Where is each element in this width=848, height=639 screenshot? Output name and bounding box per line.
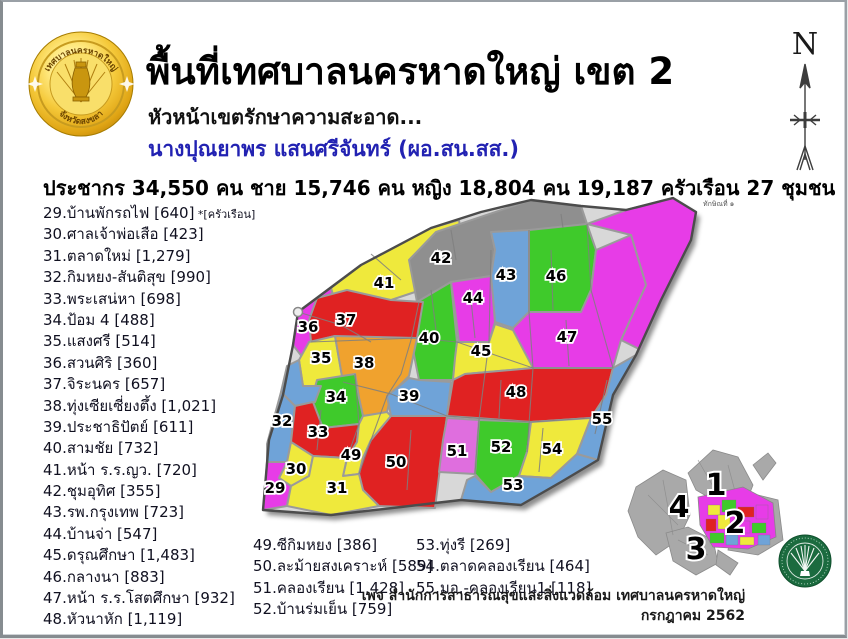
region-number-36: 36	[298, 318, 319, 336]
community-item-46: 46.กลางนา [883]	[43, 567, 255, 588]
community-item-36: 36.สวนศิริ [360]	[43, 353, 255, 374]
community-item-34: 34.ป้อม 4 [488]	[43, 310, 255, 331]
vase-emblem-icon	[72, 62, 90, 101]
region-number-31: 31	[327, 479, 348, 497]
community-item-43: 43.รพ.กรุงเทพ [723]	[43, 502, 255, 523]
region-number-49: 49	[341, 446, 362, 464]
community-item-30: 30.ศาลเจ้าพ่อเสือ [423]	[43, 224, 255, 245]
community-item-47: 47.หน้า ร.ร.โสตศึกษา [932]	[43, 588, 255, 609]
unit-note: *[ครัวเรือน]	[194, 208, 255, 221]
north-label: N	[792, 27, 818, 62]
road-label: ทักษิณที่ ๑	[703, 199, 734, 208]
region-number-37: 37	[336, 311, 357, 329]
officer-name: นางปุณยาพร แสนศรีจันทร์ (ผอ.สน.สส.)	[148, 133, 519, 166]
minimap-zone-number-2: 2	[725, 506, 746, 541]
region-number-34: 34	[326, 388, 347, 406]
region-number-51: 51	[447, 442, 468, 460]
region-number-35: 35	[311, 349, 332, 367]
minimap-zone-number-4: 4	[669, 490, 690, 525]
community-item-45: 45.ดรุณศึกษา [1,483]	[43, 545, 255, 566]
community-list-col1: 29.บ้านพักรถไฟ [640] *[ครัวเรือน]30.ศาลเ…	[43, 203, 255, 631]
region-number-44: 44	[463, 289, 484, 307]
credit-date: กรกฎาคม 2562	[641, 605, 745, 627]
community-item-41: 41.หน้า ร.ร.ญว. [720]	[43, 460, 255, 481]
region-number-32: 32	[272, 412, 293, 430]
community-item-37: 37.จิระนคร [657]	[43, 374, 255, 395]
community-item-48: 48.หัวนาหัก [1,119]	[43, 609, 255, 630]
community-item-29: 29.บ้านพักรถไฟ [640] *[ครัวเรือน]	[43, 203, 255, 224]
community-item-35: 35.แสงศรี [514]	[43, 331, 255, 352]
health-department-green-seal-icon	[777, 533, 833, 589]
region-number-40: 40	[419, 329, 440, 347]
region-number-53: 53	[503, 476, 524, 494]
roundabout-icon	[294, 308, 303, 317]
poster-page: เทศบาลนครหาดใหญ่ จังหวัดสงขลา พื้นที่เทศ…	[0, 0, 847, 638]
region-number-30: 30	[286, 460, 307, 478]
community-item-39: 39.ประชาธิปัตย์ [611]	[43, 417, 255, 438]
community-item-31: 31.ตลาดใหม่ [1,279]	[43, 246, 255, 267]
region-number-47: 47	[557, 328, 578, 346]
minimap-zone-number-3: 3	[686, 532, 707, 567]
community-item-32: 32.กิมหยง-สันติสุข [990]	[43, 267, 255, 288]
region-number-45: 45	[471, 342, 492, 360]
region-number-39: 39	[399, 387, 420, 405]
region-number-55: 55	[592, 410, 613, 428]
community-item-42: 42.ชุมอุทิศ [355]	[43, 481, 255, 502]
minimap-zone-number-1: 1	[706, 468, 727, 503]
page-title: พื้นที่เทศบาลนครหาดใหญ่ เขต 2	[146, 42, 674, 101]
map-region-44	[451, 276, 495, 342]
city-overview-minimap: 1234	[618, 445, 788, 579]
credit-line: เพจ สำนักการสาธารณสุขและสิ่งแวดล้อม เทศบ…	[362, 585, 745, 607]
region-number-52: 52	[491, 438, 512, 456]
region-number-41: 41	[374, 274, 395, 292]
community-item-54: 54.ตลาดคลองเรียน [464]	[416, 555, 591, 576]
region-number-54: 54	[542, 440, 563, 458]
municipality-gold-seal-icon: เทศบาลนครหาดใหญ่ จังหวัดสงขลา	[27, 30, 135, 138]
region-number-38: 38	[354, 354, 375, 372]
region-number-46: 46	[546, 267, 567, 285]
community-item-50: 50.ละม้ายสงเคราะห์ [589]	[253, 555, 432, 576]
community-item-38: 38.ทุ่งเซียเซี่ยงตึ้ง [1,021]	[43, 396, 255, 417]
region-number-33: 33	[308, 423, 329, 441]
region-number-48: 48	[506, 383, 527, 401]
community-item-44: 44.บ้านจ่า [547]	[43, 524, 255, 545]
north-compass-icon: N	[779, 22, 831, 172]
community-item-40: 40.สามชัย [732]	[43, 438, 255, 459]
community-item-33: 33.พระเสน่หา [698]	[43, 289, 255, 310]
region-number-50: 50	[386, 453, 407, 471]
region-number-29: 29	[265, 479, 286, 497]
region-number-43: 43	[496, 266, 517, 284]
region-number-42: 42	[431, 249, 452, 267]
department-line: หัวหน้าเขตรักษาความสะอาด...	[148, 101, 422, 133]
